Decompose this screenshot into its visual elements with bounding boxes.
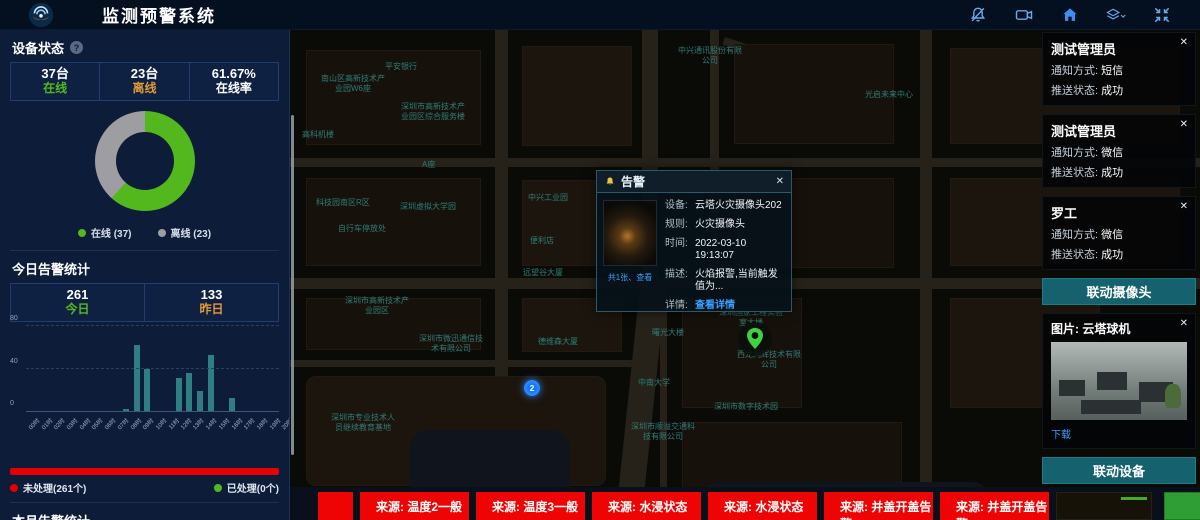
alarm-location-pin[interactable] bbox=[738, 322, 772, 356]
desc-value: 火焰报警,当前触发值为... bbox=[695, 269, 785, 293]
home-icon[interactable] bbox=[1060, 5, 1080, 25]
notify-status-label: 推送状态: bbox=[1051, 249, 1101, 261]
map-label: 曙光大楼 bbox=[652, 328, 684, 338]
map-label: 深圳市专业技术人员继续教育基地 bbox=[328, 413, 398, 433]
hour-bar bbox=[197, 391, 203, 411]
bar-slot bbox=[258, 326, 269, 411]
header-actions bbox=[968, 5, 1172, 25]
bar-slot bbox=[195, 326, 206, 411]
grid-line bbox=[26, 325, 279, 326]
bar-slot bbox=[131, 326, 142, 411]
device-cluster-marker[interactable]: 2 bbox=[524, 380, 540, 396]
bar-slot bbox=[37, 326, 48, 411]
bar-slot bbox=[216, 326, 227, 411]
notify-method-row: 通知方式: 短信 bbox=[1051, 62, 1187, 78]
popup-close-icon[interactable]: ✕ bbox=[776, 176, 784, 187]
left-stats-panel: 设备状态 ? 37台 在线 23台 离线 61.67% 在线率 在线 (37) bbox=[0, 30, 290, 520]
legend-offline-dot bbox=[158, 229, 166, 237]
bar-slot bbox=[58, 326, 69, 411]
hour-tick-label: 20时 bbox=[279, 416, 290, 431]
close-icon[interactable]: ✕ bbox=[1180, 201, 1188, 212]
hourly-alarm-plot: 04080 bbox=[26, 326, 279, 412]
linked-camera-header[interactable]: 联动摄像头 bbox=[1042, 278, 1196, 305]
yesterday-label: 昨日 bbox=[145, 302, 278, 317]
map-label: 深圳市微迅通信技术有限公司 bbox=[416, 334, 486, 354]
alert-ticker-card[interactable]: 来源: 水浸状态 bbox=[592, 492, 701, 520]
processing-legend: 未处理(261个) 已处理(0个) bbox=[10, 480, 279, 495]
alarm-bell-icon bbox=[604, 176, 616, 188]
map-label: 德维森大厦 bbox=[538, 337, 578, 347]
map-label: A座 bbox=[422, 160, 435, 170]
bar-slot bbox=[26, 326, 37, 411]
hour-bar bbox=[229, 398, 235, 411]
map-building bbox=[306, 178, 481, 266]
view-detail-link[interactable]: 查看详情 bbox=[695, 300, 735, 312]
bar-slot bbox=[163, 326, 174, 411]
alarm-popup-header: 告警 ✕ bbox=[597, 171, 791, 193]
hour-bar bbox=[144, 369, 150, 412]
rule-label: 规则: bbox=[665, 219, 695, 231]
online-label: 在线 bbox=[11, 81, 99, 96]
photo-shape bbox=[1097, 372, 1127, 390]
today-alarm-section-title: 今日告警统计 bbox=[10, 251, 279, 283]
notify-method-value: 微信 bbox=[1101, 147, 1123, 159]
fullscreen-toggle-icon[interactable] bbox=[1152, 5, 1172, 25]
close-icon[interactable]: ✕ bbox=[1180, 37, 1188, 48]
month-alarm-label: 本月告警统计 bbox=[12, 511, 90, 520]
alert-green-thumb[interactable] bbox=[1164, 492, 1200, 520]
alarm-device-row: 设备: 云塔火灾摄像头202 bbox=[665, 200, 785, 212]
notify-status-row: 推送状态: 成功 bbox=[1051, 164, 1187, 180]
notify-method-label: 通知方式: bbox=[1051, 147, 1101, 159]
alert-ticker-lead-block[interactable] bbox=[318, 492, 353, 520]
y-tick-label: 80 bbox=[10, 315, 18, 322]
photo-plant bbox=[1165, 384, 1181, 408]
notify-title: 测试管理员 bbox=[1051, 121, 1187, 140]
bar-slot bbox=[226, 326, 237, 411]
notify-card-3: ✕ 罗工 通知方式: 微信 推送状态: 成功 bbox=[1042, 196, 1196, 270]
hour-bar bbox=[208, 355, 214, 411]
notify-status-value: 成功 bbox=[1101, 85, 1123, 97]
hourly-alarm-chart: 04080 00时01时02时03时04时05时06时07时08时09时10时1… bbox=[10, 326, 279, 444]
bar-slot bbox=[68, 326, 79, 411]
close-icon[interactable]: ✕ bbox=[1180, 119, 1188, 130]
camera-snapshot-image[interactable] bbox=[1051, 342, 1187, 420]
hour-bar bbox=[134, 345, 140, 411]
map-label: 中兴工业园 bbox=[528, 193, 568, 203]
map-road bbox=[290, 360, 650, 367]
alert-ticker-items: 来源: 温度2一般来源: 温度3一般来源: 水浸状态来源: 水浸状态来源: 并盖… bbox=[360, 492, 1056, 520]
alert-ticker-card[interactable]: 来源: 并盖开盖告警 bbox=[824, 492, 933, 520]
yesterday-count: 133 bbox=[145, 287, 278, 302]
rule-value: 火灾摄像头 bbox=[695, 219, 745, 231]
unhandled-text: 未处理(261个) bbox=[23, 480, 86, 495]
today-cell: 261 今日 bbox=[11, 284, 144, 321]
photo-shape bbox=[1081, 400, 1141, 414]
today-count: 261 bbox=[11, 287, 144, 302]
unhandled-legend: 未处理(261个) bbox=[10, 480, 86, 495]
alarm-rule-row: 规则: 火灾摄像头 bbox=[665, 219, 785, 231]
alarm-desc-row: 描述: 火焰报警,当前触发值为... bbox=[665, 269, 785, 293]
right-notify-panel: ✕ 测试管理员 通知方式: 短信 推送状态: 成功 ✕ 测试管理员 通知方式: … bbox=[1042, 32, 1196, 490]
map-building bbox=[522, 46, 632, 146]
bar-slot bbox=[205, 326, 216, 411]
bar-slot bbox=[269, 326, 280, 411]
map-label: 远望谷大厦 bbox=[523, 268, 563, 278]
map-label: 光启未来中心 bbox=[865, 90, 913, 100]
notify-status-row: 推送状态: 成功 bbox=[1051, 246, 1187, 262]
notify-method-label: 通知方式: bbox=[1051, 229, 1101, 241]
handled-text: 已处理(0个) bbox=[227, 480, 279, 495]
offline-count-cell: 23台 离线 bbox=[99, 63, 188, 100]
download-link[interactable]: 下载 bbox=[1051, 426, 1187, 441]
snapshot-view-link[interactable]: 共1张、查看 bbox=[603, 272, 657, 283]
bar-slot bbox=[110, 326, 121, 411]
cluster-count: 2 bbox=[530, 384, 534, 393]
map-label: 中兴通讯股份有限公司 bbox=[675, 46, 745, 66]
bar-slot bbox=[174, 326, 185, 411]
map-label: 便利店 bbox=[530, 236, 554, 246]
desc-label: 描述: bbox=[665, 269, 695, 293]
yesterday-cell: 133 昨日 bbox=[144, 284, 278, 321]
online-count: 37台 bbox=[11, 66, 99, 81]
alert-ticker-card[interactable]: 来源: 并盖开盖告警 bbox=[940, 492, 1049, 520]
notify-method-row: 通知方式: 微信 bbox=[1051, 144, 1187, 160]
y-tick-label: 0 bbox=[10, 400, 14, 407]
unhandled-progress-bar bbox=[10, 468, 279, 475]
close-icon[interactable]: ✕ bbox=[1180, 318, 1188, 329]
bar-slot bbox=[100, 326, 111, 411]
map-label: 平安银行 bbox=[385, 62, 417, 72]
legend-online-text: 在线 (37) bbox=[91, 225, 132, 240]
map-label: 自行车停放处 bbox=[338, 224, 386, 234]
notify-status-label: 推送状态: bbox=[1051, 167, 1101, 179]
notify-title: 测试管理员 bbox=[1051, 39, 1187, 58]
notify-method-label: 通知方式: bbox=[1051, 65, 1101, 77]
legend-offline-text: 离线 (23) bbox=[171, 225, 212, 240]
map-label: 科技园南区R区 bbox=[316, 198, 370, 208]
notify-status-row: 推送状态: 成功 bbox=[1051, 82, 1187, 98]
alert-video-thumb[interactable] bbox=[1056, 492, 1152, 520]
panel-scrollbar[interactable] bbox=[291, 115, 294, 455]
time-label: 时间: bbox=[665, 238, 695, 262]
camera-card-title: 图片: 云塔球机 bbox=[1051, 320, 1187, 337]
hour-bar bbox=[123, 409, 129, 411]
map-label: 中南大学 bbox=[638, 378, 670, 388]
device-status-table: 37台 在线 23台 离线 61.67% 在线率 bbox=[10, 62, 279, 101]
photo-shape bbox=[1059, 380, 1085, 396]
layers-dropdown-icon[interactable] bbox=[1106, 5, 1126, 25]
hour-bars bbox=[26, 326, 279, 411]
device-donut bbox=[95, 111, 195, 211]
top-header: 监测预警系统 bbox=[0, 0, 1200, 30]
notify-method-row: 通知方式: 微信 bbox=[1051, 226, 1187, 242]
bar-slot bbox=[153, 326, 164, 411]
device-value: 云塔火灾摄像头202 bbox=[695, 200, 782, 212]
device-status-section-title: 设备状态 ? bbox=[10, 30, 279, 62]
legend-online-dot bbox=[78, 229, 86, 237]
alarm-snapshot-image[interactable] bbox=[603, 200, 657, 266]
notify-status-value: 成功 bbox=[1101, 167, 1123, 179]
notify-status-label: 推送状态: bbox=[1051, 85, 1101, 97]
detail-label: 详情: bbox=[665, 300, 695, 312]
map-road bbox=[920, 30, 932, 520]
offline-label: 离线 bbox=[100, 81, 188, 96]
legend-online: 在线 (37) bbox=[78, 225, 132, 240]
alert-ticker-card[interactable]: 来源: 温度3一般 bbox=[476, 492, 585, 520]
alarm-detail-rows: 设备: 云塔火灾摄像头202 规则: 火灾摄像头 时间: 2022-03-10 … bbox=[665, 200, 785, 319]
bar-slot bbox=[237, 326, 248, 411]
alarm-thumb-col: 共1张、查看 bbox=[603, 200, 657, 319]
time-value: 2022-03-10 19:13:07 bbox=[695, 238, 785, 262]
today-alarm-label: 今日告警统计 bbox=[12, 259, 90, 278]
hour-bar bbox=[186, 373, 192, 411]
alarm-popup-body: 共1张、查看 设备: 云塔火灾摄像头202 规则: 火灾摄像头 时间: 2022… bbox=[597, 193, 791, 323]
page-title: 监测预警系统 bbox=[102, 2, 216, 27]
device-donut-wrap bbox=[10, 111, 279, 211]
bar-slot bbox=[89, 326, 100, 411]
online-rate-label: 在线率 bbox=[190, 81, 278, 96]
legend-offline: 离线 (23) bbox=[158, 225, 212, 240]
hour-bar bbox=[176, 378, 182, 411]
hour-axis-labels: 00时01时02时03时04时05时06时07时08时09时10时11时12时1… bbox=[26, 412, 279, 421]
alert-ticker-card[interactable]: 来源: 水浸状态 bbox=[708, 492, 817, 520]
camera-card: ✕ 图片: 云塔球机 下载 bbox=[1042, 313, 1196, 449]
bar-slot bbox=[142, 326, 153, 411]
notify-status-value: 成功 bbox=[1101, 249, 1123, 261]
bar-slot bbox=[247, 326, 258, 411]
online-count-cell: 37台 在线 bbox=[11, 63, 99, 100]
today-alarm-table: 261 今日 133 昨日 bbox=[10, 283, 279, 322]
bar-slot bbox=[184, 326, 195, 411]
notify-method-value: 短信 bbox=[1101, 65, 1123, 77]
month-alarm-section-title: 本月告警统计 bbox=[10, 503, 279, 520]
notify-card-2: ✕ 测试管理员 通知方式: 微信 推送状态: 成功 bbox=[1042, 114, 1196, 188]
alarm-time-row: 时间: 2022-03-10 19:13:07 bbox=[665, 238, 785, 262]
monitoring-dashboard: 监测预警系统 bbox=[0, 0, 1200, 520]
map-label: 深圳市高新技术产业园区 bbox=[342, 296, 412, 316]
today-label: 今日 bbox=[11, 302, 144, 317]
help-icon[interactable]: ? bbox=[70, 41, 83, 54]
donut-legend: 在线 (37) 离线 (23) bbox=[10, 225, 279, 240]
map-label: 深圳市顺溢交通科技有限公司 bbox=[628, 422, 698, 442]
alert-ticker-card[interactable]: 来源: 温度2一般 bbox=[360, 492, 469, 520]
bar-slot bbox=[79, 326, 90, 411]
online-rate: 61.67% bbox=[190, 66, 278, 81]
bar-slot bbox=[121, 326, 132, 411]
device-status-label: 设备状态 bbox=[12, 38, 64, 57]
app-logo-icon bbox=[28, 2, 54, 28]
alarm-popup: 告警 ✕ 共1张、查看 设备: 云塔火灾摄像头202 规则: 火灾摄像头 bbox=[596, 170, 792, 312]
device-label: 设备: bbox=[665, 200, 695, 212]
alert-ticker-bar: 来源: 温度2一般来源: 温度3一般来源: 水浸状态来源: 水浸状态来源: 并盖… bbox=[290, 487, 1200, 520]
notify-card-1: ✕ 测试管理员 通知方式: 短信 推送状态: 成功 bbox=[1042, 32, 1196, 106]
notify-method-value: 微信 bbox=[1101, 229, 1123, 241]
map-label: 深圳虚拟大学园 bbox=[400, 202, 456, 212]
offline-count: 23台 bbox=[100, 66, 188, 81]
unhandled-dot bbox=[10, 484, 18, 492]
bell-muted-icon[interactable] bbox=[968, 5, 988, 25]
video-camera-icon[interactable] bbox=[1014, 5, 1034, 25]
bar-slot bbox=[47, 326, 58, 411]
notify-title: 罗工 bbox=[1051, 203, 1187, 222]
y-tick-label: 40 bbox=[10, 358, 18, 365]
handled-dot bbox=[214, 484, 222, 492]
map-label: 深圳市数字技术园 bbox=[714, 402, 778, 412]
handled-legend: 已处理(0个) bbox=[214, 480, 279, 495]
map-label: 深圳市高新技术产业园区综合服务楼 bbox=[398, 102, 468, 122]
map-label: 南山区高新技术产业园W6座 bbox=[318, 74, 388, 94]
grid-line bbox=[26, 368, 279, 369]
online-rate-cell: 61.67% 在线率 bbox=[189, 63, 278, 100]
alarm-popup-title: 告警 bbox=[621, 173, 645, 190]
alarm-detail-row: 详情: 查看详情 bbox=[665, 300, 785, 312]
map-label: 高科机楼 bbox=[302, 130, 334, 140]
linked-device-header[interactable]: 联动设备 bbox=[1042, 457, 1196, 484]
